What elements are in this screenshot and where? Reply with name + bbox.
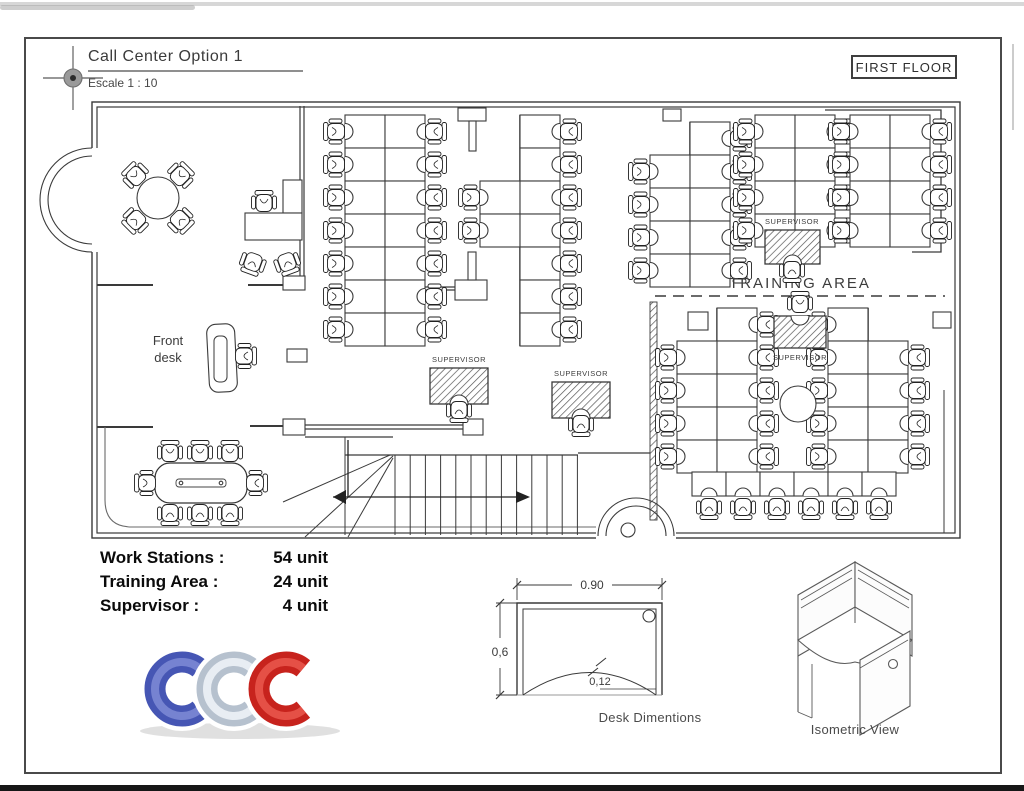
workstation-chair <box>656 345 677 370</box>
front-desk-label: desk <box>154 350 182 365</box>
legend-row-training: Training Area : 24 unit <box>100 570 328 594</box>
legend-row-workstations: Work Stations : 54 unit <box>100 546 328 570</box>
svg-text:SUPERVISOR: SUPERVISOR <box>773 353 827 362</box>
workstation-chair <box>426 218 447 243</box>
isometric-view-caption: Isometric View <box>775 722 935 737</box>
workstation-cluster-3 <box>629 122 752 287</box>
workstation-chair <box>829 185 850 210</box>
reception-chair <box>252 191 277 212</box>
workstation-chair <box>324 185 345 210</box>
workstation-chair <box>426 152 447 177</box>
workstation-cluster-5 <box>829 115 952 247</box>
training-chair <box>833 499 858 520</box>
svg-text:0.90: 0.90 <box>580 578 604 592</box>
training-chair <box>697 499 722 520</box>
workstation-chair <box>561 251 582 276</box>
drawing-title: Call Center Option 1 <box>88 48 303 72</box>
workstation-chair <box>426 251 447 276</box>
desk-dimensions-caption: Desk Dimentions <box>575 710 725 725</box>
workstation-chair <box>324 284 345 309</box>
supervisor-chair <box>780 262 805 283</box>
workstation-chair <box>561 119 582 144</box>
desk-dimensions-diagram: 0.900,60,12 <box>492 578 666 699</box>
legend-label: Work Stations : <box>100 546 250 570</box>
workstation-chair <box>561 284 582 309</box>
workstation-chair <box>758 378 779 403</box>
legend-value: 4 unit <box>250 594 328 618</box>
blueprint-page: TRAINING AREASUPERVISORSUPERVISORSUPERVI… <box>0 0 1024 791</box>
supervisor-chair <box>788 292 813 313</box>
title-block: Call Center Option 1 Escale 1 : 10 <box>88 48 303 90</box>
workstation-chair <box>629 225 650 250</box>
conference-chair <box>188 441 213 462</box>
svg-text:desk: desk <box>154 350 182 365</box>
workstation-chair <box>656 378 677 403</box>
workstation-chair <box>561 218 582 243</box>
workstation-chair <box>734 218 755 243</box>
workstation-chair <box>324 317 345 342</box>
workstation-chair <box>656 444 677 469</box>
floor-label-badge: FIRST FLOOR <box>851 55 957 79</box>
workstation-chair <box>931 185 952 210</box>
workstation-chair <box>561 185 582 210</box>
workstation-chair <box>909 345 930 370</box>
workstation-chair <box>324 119 345 144</box>
svg-text:0,6: 0,6 <box>492 645 509 659</box>
conference-chair <box>188 505 213 526</box>
floor-plan-drawing: TRAINING AREASUPERVISORSUPERVISORSUPERVI… <box>0 0 1024 791</box>
workstation-chair <box>459 218 480 243</box>
front-desk-chair <box>236 344 257 369</box>
workstation-chair <box>807 444 828 469</box>
workstation-chair <box>758 444 779 469</box>
workstation-chair <box>931 119 952 144</box>
svg-text:Front: Front <box>153 333 184 348</box>
workstation-chair <box>909 378 930 403</box>
reception-area <box>118 158 307 392</box>
workstation-chair <box>829 152 850 177</box>
workstation-chair <box>629 192 650 217</box>
workstation-chair <box>829 218 850 243</box>
training-chair <box>765 499 790 520</box>
workstation-chair <box>656 411 677 436</box>
supervisor-chair <box>447 402 472 423</box>
supervisor-chair <box>569 416 594 437</box>
unit-legend: Work Stations : 54 unit Training Area : … <box>100 546 328 618</box>
workstation-chair <box>324 251 345 276</box>
workstation-chair <box>459 185 480 210</box>
workstation-chair <box>629 258 650 283</box>
workstation-chair <box>426 317 447 342</box>
svg-text:SUPERVISOR: SUPERVISOR <box>554 369 608 378</box>
company-logo <box>140 662 340 739</box>
guest-chair <box>272 250 303 278</box>
workstation-chair <box>629 159 650 184</box>
conference-room <box>135 441 268 526</box>
drawing-scale: Escale 1 : 10 <box>88 76 303 90</box>
front-desk-label: Front <box>153 333 184 348</box>
legend-label: Supervisor : <box>100 594 250 618</box>
training-chair <box>867 499 892 520</box>
workstation-chair <box>909 411 930 436</box>
workstation-chair <box>931 218 952 243</box>
legend-value: 54 unit <box>250 546 328 570</box>
workstation-chair <box>758 411 779 436</box>
guest-chair <box>237 250 268 278</box>
workstation-chair <box>931 152 952 177</box>
conference-chair <box>158 505 183 526</box>
workstation-chair <box>426 185 447 210</box>
conference-chair <box>247 471 268 496</box>
front-desk <box>206 323 256 392</box>
workstation-chair <box>734 152 755 177</box>
svg-text:0,12: 0,12 <box>589 676 610 688</box>
training-chair <box>731 499 756 520</box>
workstation-chair <box>829 119 850 144</box>
conference-chair <box>158 441 183 462</box>
svg-text:TRAINING AREA: TRAINING AREA <box>729 275 871 292</box>
legend-row-supervisor: Supervisor : 4 unit <box>100 594 328 618</box>
workstation-chair <box>324 152 345 177</box>
workstation-cluster-1 <box>324 115 447 346</box>
workstation-chair <box>909 444 930 469</box>
workstation-cluster-2 <box>459 115 582 346</box>
workstation-chair <box>426 284 447 309</box>
workstation-chair <box>324 218 345 243</box>
legend-value: 24 unit <box>250 570 328 594</box>
staircase <box>283 437 578 537</box>
conference-chair <box>218 505 243 526</box>
workstation-chair <box>561 152 582 177</box>
svg-text:SUPERVISOR: SUPERVISOR <box>765 217 819 226</box>
supervisor-station-2: SUPERVISOR <box>552 369 610 437</box>
conference-chair <box>135 471 156 496</box>
legend-label: Training Area : <box>100 570 250 594</box>
workstation-chair <box>734 185 755 210</box>
supervisor-station-1: SUPERVISOR <box>430 355 488 423</box>
conference-chair <box>218 441 243 462</box>
isometric-view-diagram <box>798 562 912 735</box>
training-cluster-1 <box>656 308 779 473</box>
workstation-chair <box>561 317 582 342</box>
workstation-chair <box>734 119 755 144</box>
svg-text:SUPERVISOR: SUPERVISOR <box>432 355 486 364</box>
training-chair <box>799 499 824 520</box>
workstation-chair <box>426 119 447 144</box>
